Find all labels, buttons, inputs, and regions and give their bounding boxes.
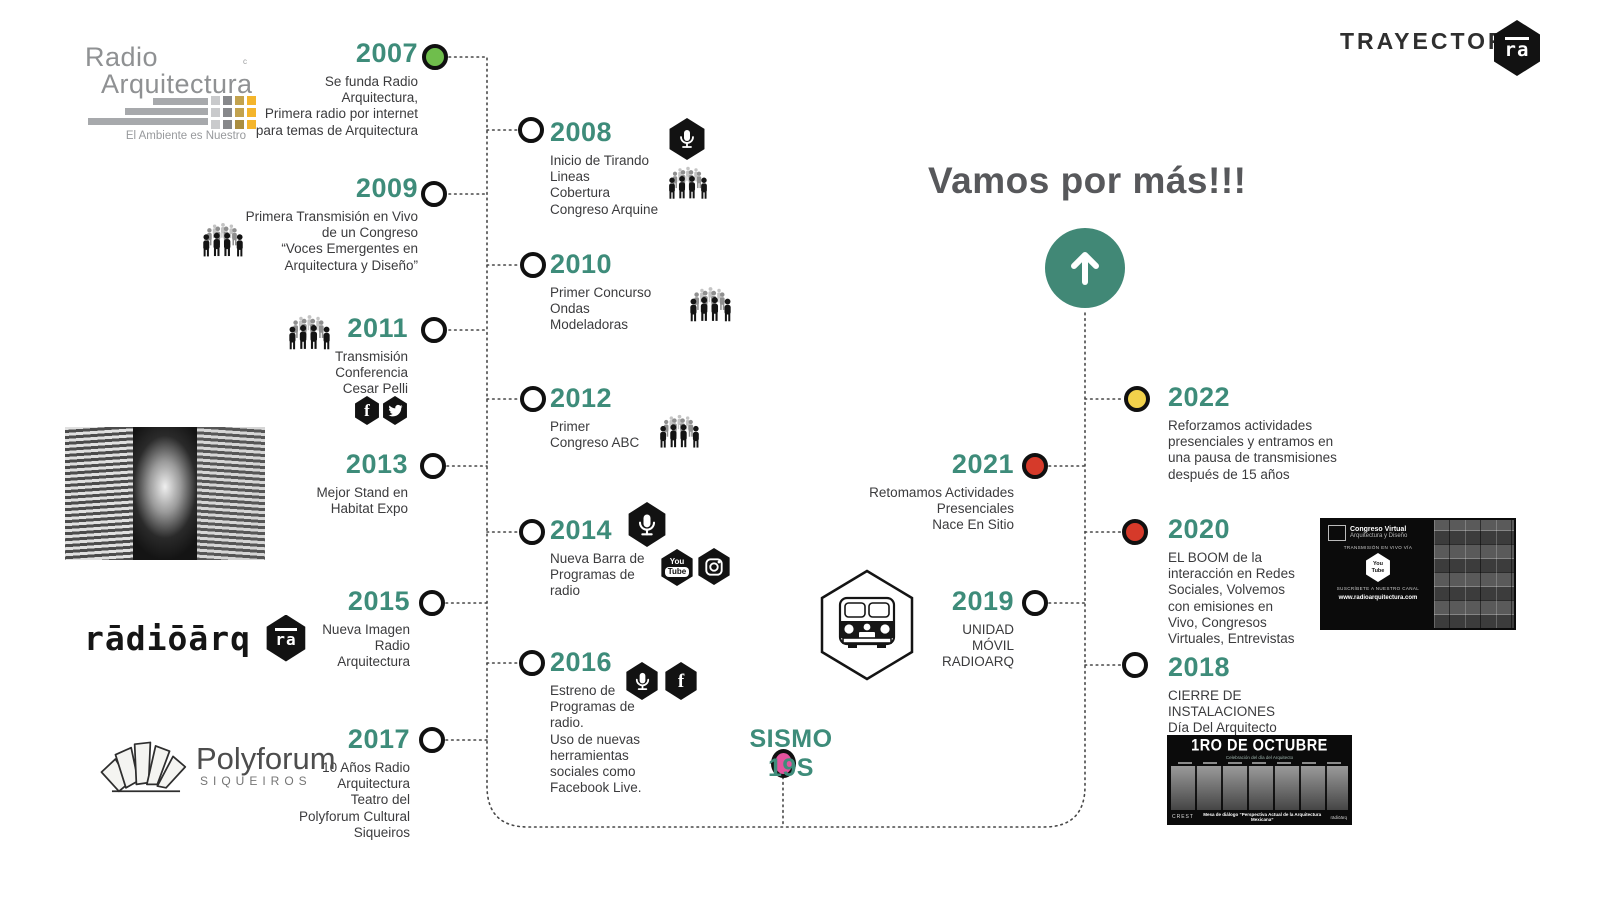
timeline-marker-2018	[1122, 652, 1148, 678]
photo-interior	[133, 427, 197, 560]
milestone-text: Transmisión Conferencia Cesar Pelli	[258, 349, 408, 398]
milestone-2021: 2021 Retomamos Actividades Presenciales …	[774, 451, 1014, 534]
youtube-tube: Tube	[1372, 568, 1385, 574]
polyforum-name: Polyforum	[196, 741, 336, 777]
timeline-marker-2012	[520, 386, 546, 412]
milestone-2011: 2011 Transmisión Conferencia Cesar Pelli	[258, 315, 408, 398]
poster-footer-right: rādiōārq	[1330, 815, 1347, 820]
milestone-year: 2021	[774, 451, 1014, 478]
congreso-card-info: Congreso Virtual Arquitectura y Diseño T…	[1320, 518, 1432, 630]
logo-tagline: El Ambiente es Nuestro	[80, 130, 246, 142]
congreso-live-label: TRANSMISIÓN EN VIVO VÍA	[1344, 545, 1412, 550]
radioarq-logo: rādiōārq ra	[84, 614, 307, 662]
ra-monogram: ra	[275, 628, 296, 648]
congreso-virtual-card: Congreso Virtual Arquitectura y Diseño T…	[1320, 518, 1516, 630]
milestone-2020: 2020 EL BOOM de la interacción en Redes …	[1168, 516, 1318, 647]
mobile-unit-van-icon	[818, 568, 916, 682]
crowd-icon	[657, 412, 702, 451]
ra-monogram: ra	[1505, 37, 1530, 60]
trajectory-slide: 2007 Se funda Radio Arquitectura, Primer…	[0, 0, 1600, 900]
milestone-text: Primer Concurso Ondas Modeladoras	[550, 285, 710, 334]
sismo-19s-label: SISMO 19S	[726, 725, 856, 783]
polyforum-sub: SIQUEIROS	[200, 774, 312, 788]
timeline-marker-2017	[419, 727, 445, 753]
logo-bar	[153, 98, 208, 105]
radioarq-hexagon-logo: ra	[265, 615, 307, 662]
polyforum-fan-icon	[98, 733, 194, 799]
photo-ribbed-wall	[65, 427, 133, 560]
milestone-text: Estreno de Programas de radio. Uso de nu…	[550, 683, 710, 796]
congreso-datebox	[1328, 525, 1346, 541]
logo-copyright-mark: c	[243, 57, 247, 66]
timeline-marker-2021	[1022, 453, 1048, 479]
up-arrow-badge	[1045, 228, 1125, 308]
timeline-marker-2009	[421, 181, 447, 207]
habitat-expo-stand-photo	[65, 427, 265, 560]
timeline-marker-2014	[519, 519, 545, 545]
heading-vamos-por-mas: Vamos por más!!!	[928, 160, 1258, 202]
congreso-url: www.radioarquitectura.com	[1339, 595, 1418, 601]
logo-square-grid	[211, 96, 256, 129]
poster-footer-center: Mesa de diálogo “Perspectiva Actual de l…	[1194, 812, 1331, 822]
milestone-year: 2022	[1168, 384, 1368, 411]
timeline-marker-2007	[422, 44, 448, 70]
timeline-marker-2020	[1122, 519, 1148, 545]
milestone-year: 2012	[550, 385, 710, 412]
logo-bar	[125, 108, 208, 115]
crowd-icon	[666, 164, 710, 202]
timeline-marker-2011	[421, 317, 447, 343]
milestone-year: 2018	[1168, 654, 1348, 681]
milestone-text: CIERRE DE INSTALACIONES Día Del Arquitec…	[1168, 688, 1348, 737]
radioarq-wordmark: rādiōārq	[84, 619, 251, 658]
milestone-text: Reforzamos actividades presenciales y en…	[1168, 418, 1368, 483]
poster-footer-left: CREST	[1172, 814, 1194, 820]
radio-arquitectura-logo: Radio Arquitectura c El Ambiente es Nues…	[80, 42, 256, 142]
poster-title: 1RO DE OCTUBRE	[1167, 737, 1352, 755]
milestone-year: 2011	[258, 315, 408, 342]
congreso-subscribe-label: SUSCRÍBETE A NUESTRO CANAL	[1337, 586, 1419, 591]
milestone-2010: 2010 Primer Concurso Ondas Modeladoras	[550, 251, 710, 334]
crowd-icon	[200, 220, 246, 260]
poster-speaker-names	[1167, 762, 1352, 764]
timeline-marker-2019	[1022, 590, 1048, 616]
photo-ribbed-wall	[197, 427, 265, 560]
octubre-poster: 1RO DE OCTUBRE Celebración del día del A…	[1167, 735, 1352, 825]
crowd-icon	[286, 312, 333, 353]
congreso-title: Congreso Virtual	[1350, 526, 1407, 534]
timeline-marker-2022	[1124, 386, 1150, 412]
youtube-you: You	[1372, 561, 1385, 567]
congreso-participants-mosaic	[1434, 520, 1514, 628]
timeline-marker-2015	[419, 590, 445, 616]
milestone-year: 2009	[168, 175, 418, 202]
congreso-subtitle: Arquitectura y Diseño	[1350, 533, 1407, 540]
milestone-2018: 2018 CIERRE DE INSTALACIONES Día Del Arq…	[1168, 654, 1348, 737]
milestone-year: 2015	[240, 588, 410, 615]
milestone-year: 2010	[550, 251, 710, 278]
poster-subtitle: Celebración del día del Arquitecto	[1167, 755, 1352, 760]
milestone-text: EL BOOM de la interacción en Redes Socia…	[1168, 550, 1318, 647]
milestone-text: Retomamos Actividades Presenciales Nace …	[774, 485, 1014, 534]
poster-speakers-photo-strip	[1171, 766, 1348, 810]
timeline-marker-2008	[518, 117, 544, 143]
logo-bar	[88, 118, 208, 125]
youtube-icon: You Tube	[1365, 553, 1391, 582]
milestone-2022: 2022 Reforzamos actividades presenciales…	[1168, 384, 1368, 483]
timeline-marker-2010	[520, 252, 546, 278]
arrow-up-icon	[1063, 246, 1107, 290]
timeline-marker-2016	[519, 650, 545, 676]
timeline-marker-2013	[420, 453, 446, 479]
crowd-icon	[687, 284, 734, 325]
polyforum-siqueiros-logo: Polyforum SIQUEIROS	[98, 733, 318, 803]
milestone-year: 2020	[1168, 516, 1318, 543]
